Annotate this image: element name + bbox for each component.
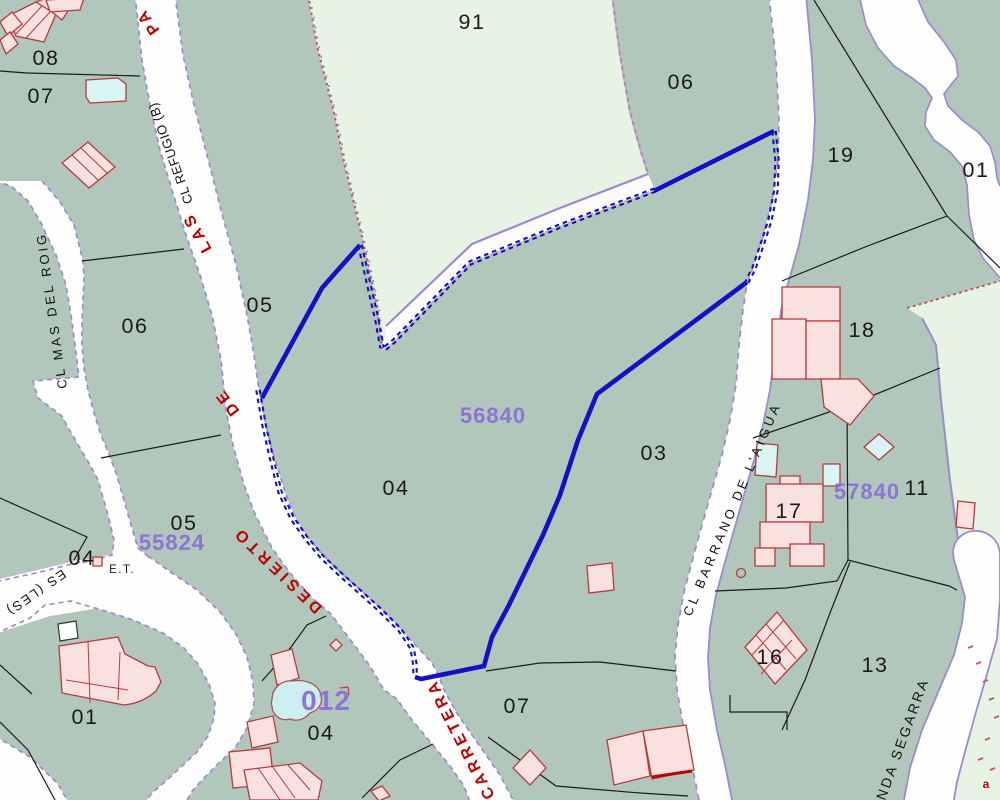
svg-text:07: 07 xyxy=(28,84,55,108)
svg-text:01: 01 xyxy=(963,158,990,182)
svg-text:01: 01 xyxy=(72,705,99,729)
svg-text:18: 18 xyxy=(849,318,876,342)
svg-text:16: 16 xyxy=(757,645,784,669)
svg-text:91: 91 xyxy=(459,10,486,34)
svg-text:04: 04 xyxy=(383,476,410,500)
svg-text:13: 13 xyxy=(862,653,889,677)
svg-text:012: 012 xyxy=(301,685,351,716)
svg-text:19: 19 xyxy=(828,143,855,167)
svg-text:08: 08 xyxy=(33,46,60,70)
svg-text:E.T.: E.T. xyxy=(109,564,135,576)
svg-text:06: 06 xyxy=(122,314,149,338)
svg-text:a: a xyxy=(983,777,990,791)
svg-text:06: 06 xyxy=(668,70,695,94)
svg-text:57840: 57840 xyxy=(834,479,900,504)
svg-text:04: 04 xyxy=(69,546,96,570)
svg-text:56840: 56840 xyxy=(460,403,526,428)
svg-text:04: 04 xyxy=(308,721,335,745)
svg-text:05: 05 xyxy=(247,293,274,317)
svg-text:07: 07 xyxy=(504,694,531,718)
svg-text:17: 17 xyxy=(776,499,803,523)
svg-text:55824: 55824 xyxy=(139,530,205,555)
svg-text:03: 03 xyxy=(641,441,668,465)
svg-text:11: 11 xyxy=(904,476,929,500)
